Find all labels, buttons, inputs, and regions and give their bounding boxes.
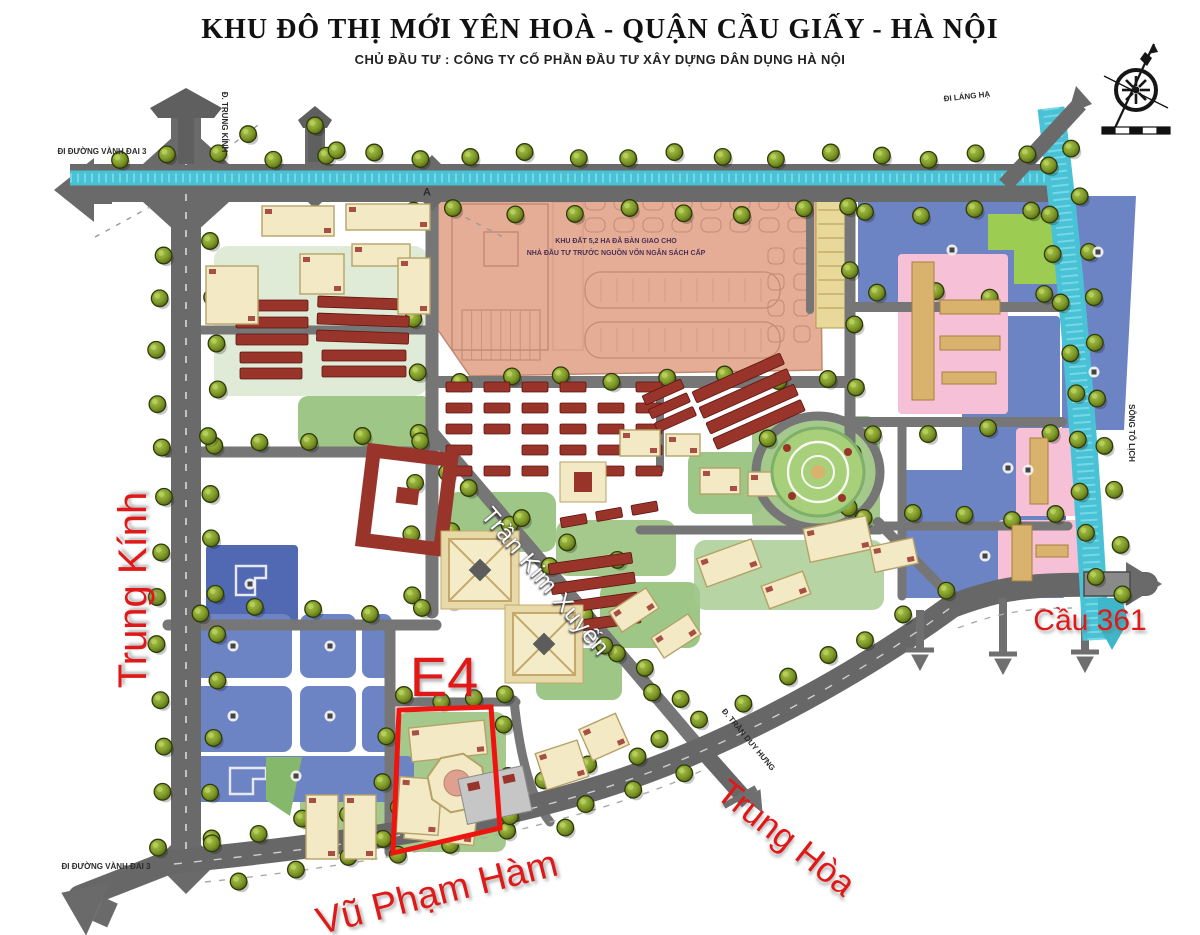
rowhouse-building [631, 501, 658, 515]
rowhouse-building [484, 403, 510, 413]
residential-building [206, 266, 258, 324]
rowhouse-building [484, 466, 510, 476]
tree-icon [666, 144, 685, 163]
rowhouse-building [522, 466, 548, 476]
page-subtitle: CHỦ ĐẦU TƯ : CÔNG TY CỔ PHẦN ĐẦU TƯ XÂY … [0, 52, 1200, 67]
parcel-marker-icon [325, 641, 336, 652]
parcel-marker-icon [291, 771, 302, 782]
rowhouse-building [522, 403, 548, 413]
rowhouse-building [240, 368, 302, 379]
tree-icon [516, 144, 535, 163]
residential-building [620, 430, 660, 456]
residential-building [408, 720, 487, 762]
tree-icon [874, 147, 893, 166]
tree-icon [820, 647, 839, 666]
tree-icon [780, 668, 799, 687]
e4-label: E4 [410, 649, 479, 705]
tree-icon [240, 126, 259, 145]
rowhouse-building [484, 382, 510, 392]
tree-icon [150, 839, 169, 858]
rowhouse-building [598, 403, 624, 413]
rowhouse-building [522, 424, 548, 434]
rowhouse-building [560, 424, 586, 434]
tree-icon [149, 396, 168, 415]
parcel-marker-icon [245, 579, 256, 590]
rowhouse-building [484, 424, 510, 434]
rowhouse-building [322, 366, 406, 377]
tree-icon [857, 632, 876, 651]
tree-icon [644, 684, 663, 703]
rowhouse-building [446, 382, 472, 392]
parcel-marker-icon [228, 711, 239, 722]
tree-icon [967, 145, 986, 164]
rowhouse-building [522, 382, 548, 392]
tree-icon [920, 426, 939, 445]
tree-icon [691, 711, 710, 730]
rowhouse-building [636, 466, 662, 476]
tree-icon [154, 784, 173, 803]
river-label-song-to-lich: SÔNG TÔ LỊCH [1127, 404, 1135, 462]
header: KHU ĐÔ THỊ MỚI YÊN HOÀ - QUẬN CẦU GIẤY -… [0, 14, 1200, 67]
residential-building [579, 713, 629, 760]
tree-icon [288, 861, 307, 880]
rowhouse-building [560, 403, 586, 413]
residential-building [306, 795, 338, 859]
rowhouse-building [560, 445, 586, 455]
tree-icon [1112, 537, 1131, 556]
residential-building [346, 204, 430, 230]
rowhouse-building [236, 334, 308, 345]
tree-icon [895, 606, 914, 625]
rowhouse-building [322, 350, 406, 361]
compass-icon [1098, 28, 1174, 140]
tree-icon [200, 428, 219, 447]
tree-icon [1096, 438, 1115, 457]
park [772, 428, 864, 516]
rowhouse-building [522, 445, 548, 455]
residential-building [262, 206, 334, 236]
tree-icon [366, 144, 385, 163]
master-plan-map: KHU ĐẤT 5,2 HA ĐÃ BÀN GIAO CHO NHÀ ĐẦU T… [0, 0, 1200, 935]
rowhouse-building [446, 403, 472, 413]
parcel-marker-icon [1003, 463, 1014, 474]
tree-icon [153, 544, 172, 563]
road-label-vanh-dai-3-top: ĐI ĐƯỜNG VÀNH ĐAI 3 [57, 148, 146, 156]
residential-building [300, 254, 344, 294]
tree-icon [148, 342, 167, 361]
residential-building [666, 434, 700, 456]
marker-a: A [423, 188, 431, 199]
tree-icon [1106, 482, 1125, 501]
tree-icon [202, 233, 221, 252]
rowhouse-building [560, 382, 586, 392]
tree-icon [152, 692, 171, 711]
parcel-marker-icon [980, 551, 991, 562]
tree-icon [672, 691, 691, 710]
tree-icon [557, 819, 576, 838]
tree-icon [676, 765, 695, 784]
map-canvas: KHU ĐẤT 5,2 HA ĐÃ BÀN GIAO CHO NHÀ ĐẦU T… [0, 0, 1200, 935]
tree-icon [823, 144, 842, 163]
road-label-trung-kinh-small: Đ. TRUNG KÍNH [220, 92, 228, 152]
parcel-marker-icon [1093, 247, 1104, 258]
scale-bar [1102, 127, 1170, 134]
rowhouse-building [240, 352, 302, 363]
tree-icon [202, 486, 221, 505]
rowhouse-building [595, 507, 622, 521]
page-title: KHU ĐÔ THỊ MỚI YÊN HOÀ - QUẬN CẦU GIẤY -… [0, 14, 1200, 46]
tree-icon [651, 731, 670, 750]
tree-icon [151, 290, 170, 309]
parcel-marker-icon [1089, 367, 1100, 378]
parcel-marker-icon [947, 245, 958, 256]
parcel-marker-icon [228, 641, 239, 652]
residential-building [700, 468, 740, 494]
parcel-marker-icon [325, 711, 336, 722]
tree-icon [230, 873, 249, 892]
street-label-trung-kinh: Trung Kính [113, 492, 153, 688]
rowhouse-building [446, 424, 472, 434]
road-label-vanh-dai-3-bottom: ĐI ĐƯỜNG VÀNH ĐAI 3 [61, 863, 150, 871]
tree-icon [154, 439, 173, 458]
tree-icon [203, 530, 222, 549]
parcel-marker-icon [1023, 465, 1034, 476]
tree-icon [735, 695, 754, 714]
residential-building [344, 795, 376, 859]
residential-building [398, 258, 430, 314]
bridge-label-cau-361: Cầu 361 [1033, 606, 1146, 636]
